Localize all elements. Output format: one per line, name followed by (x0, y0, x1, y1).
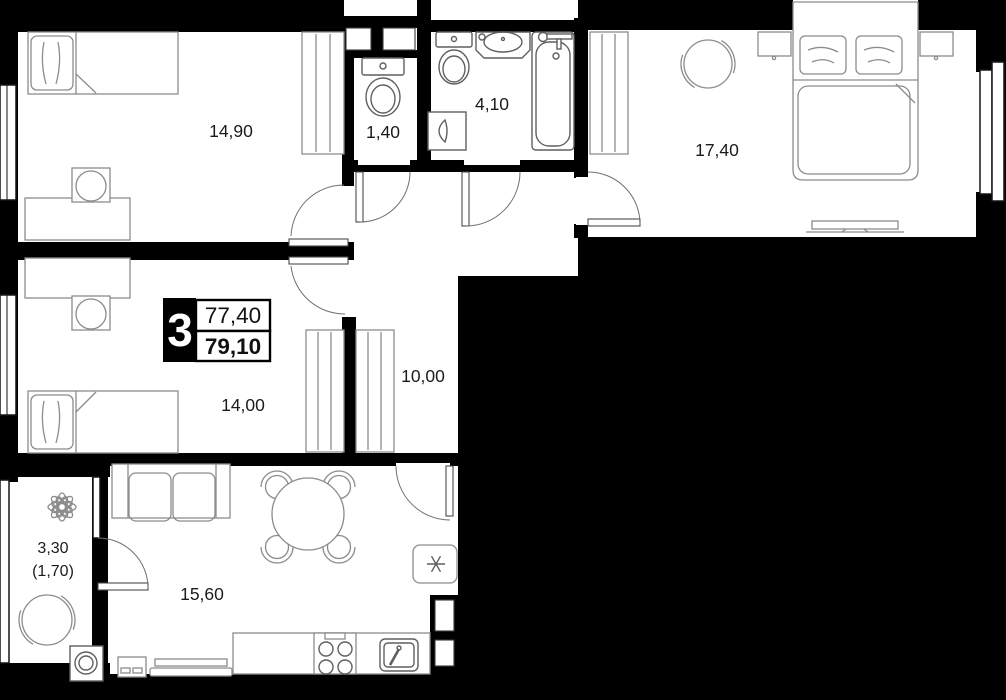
nightstand-right (920, 32, 953, 56)
tv-stand (150, 668, 232, 676)
apartment-info-badge: 3 77,40 79,10 (163, 298, 270, 362)
pillow-2 (31, 395, 73, 449)
window-room-1400 (0, 295, 16, 415)
double-bed (793, 2, 918, 180)
duct-box-3 (435, 600, 454, 631)
papasan-chair (22, 595, 72, 645)
label-kitchen-living: 15,60 (180, 584, 224, 604)
pillow-right (856, 36, 902, 74)
bathtub (532, 32, 574, 150)
window-balcony (0, 480, 9, 663)
wardrobe-2 (306, 330, 344, 452)
nightstand-left (758, 32, 791, 56)
label-bathroom: 4,10 (475, 94, 509, 114)
desk-2 (25, 258, 130, 298)
floor-plan-svg: 14,90 1,40 4,10 17,40 14,00 10,00 15,60 … (0, 0, 1006, 700)
duct-box-4 (435, 640, 454, 666)
label-balcony: 3,30 (37, 540, 68, 557)
round-armchair (684, 40, 732, 88)
kitchen-sink (380, 639, 418, 671)
label-room-1400: 14,00 (221, 395, 265, 415)
toilet-tank-1 (362, 58, 404, 75)
label-bedroom-main: 17,40 (695, 140, 739, 160)
fridge (413, 545, 457, 583)
washing-machine-balcony (70, 646, 103, 681)
hallway-furniture (356, 330, 394, 452)
pillow-1 (31, 36, 73, 90)
badge-area-bottom: 79,10 (205, 334, 261, 359)
stove (314, 633, 356, 674)
wardrobe-hall (356, 330, 394, 452)
toilet-tank-2 (436, 32, 472, 47)
dining-table (272, 478, 344, 550)
wc-fixtures (362, 58, 404, 116)
duct-box-1 (346, 28, 371, 50)
floor-plan: 14,90 1,40 4,10 17,40 14,00 10,00 15,60 … (0, 0, 1006, 700)
media-box (118, 657, 146, 677)
window-bedroom-main (980, 62, 1004, 201)
bedroom-door-opening (576, 177, 592, 225)
label-balcony-reduced: (1,70) (32, 563, 74, 580)
pillow-left (800, 36, 846, 74)
window-room-1490 (0, 85, 16, 200)
balcony-glazing (93, 477, 100, 538)
tv-console-bedroom (812, 221, 898, 229)
wardrobe-1 (302, 32, 344, 154)
badge-area-top: 77,40 (205, 303, 261, 328)
label-hallway: 10,00 (401, 366, 445, 386)
badge-rooms-count: 3 (167, 304, 193, 356)
tv-screen (155, 659, 227, 666)
duct-box-2 (383, 28, 415, 50)
desk-1 (25, 198, 130, 240)
label-room-1490: 14,90 (209, 121, 253, 141)
wardrobe-bedroom (590, 32, 628, 154)
label-wc: 1,40 (366, 122, 400, 142)
dining-set (261, 471, 355, 563)
